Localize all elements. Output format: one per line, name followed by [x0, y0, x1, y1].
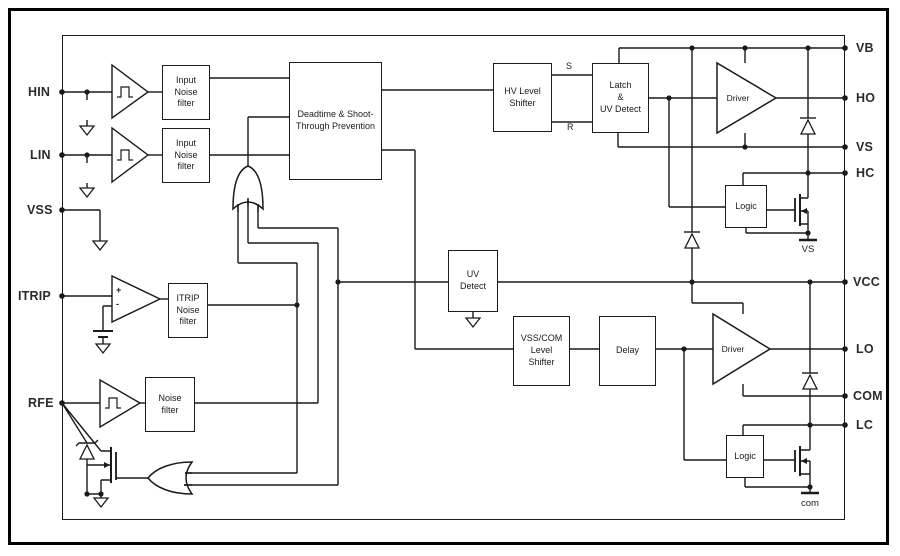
- mosfet-body-arrow-icon: [801, 208, 807, 214]
- rfe-net: [62, 380, 148, 507]
- ground-icon: [94, 498, 108, 507]
- vcc-net: [338, 282, 845, 327]
- block-latch-uv-detect: Latch & UV Detect: [592, 63, 649, 133]
- schmitt-buffer-icon: [112, 128, 148, 182]
- block-logic-high-side: Logic: [725, 185, 767, 228]
- comparator-minus-sign: -: [116, 299, 119, 309]
- mosfet-body-arrow-icon: [104, 462, 110, 468]
- pin-label-vss: VSS: [27, 203, 53, 217]
- lc-clamp-branch: [743, 282, 845, 450]
- pin-label-hin: HIN: [28, 85, 50, 99]
- pin-label-lin: LIN: [30, 148, 51, 162]
- pin-label-vs: VS: [856, 140, 873, 154]
- label-driver-low: Driver: [713, 344, 753, 354]
- ground-icon: [96, 344, 110, 353]
- pin-label-lo: LO: [856, 342, 874, 356]
- ground-icon: [80, 126, 94, 135]
- block-deadtime-shoot-through: Deadtime & Shoot- Through Prevention: [289, 62, 382, 180]
- block-rfe-noise-filter: Noise filter: [145, 377, 195, 432]
- block-itrip-noise-filter: ITRIP Noise filter: [168, 283, 208, 338]
- pin-label-itrip: ITRIP: [18, 289, 51, 303]
- diode-icon: [801, 120, 815, 134]
- ground-icon: [80, 188, 94, 197]
- pin-label-vb: VB: [856, 41, 874, 55]
- label-set: S: [566, 61, 572, 71]
- block-input-noise-filter-hin: Input Noise filter: [162, 65, 210, 120]
- sr-lines: [552, 75, 592, 122]
- pin-label-vcc: VCC: [853, 275, 880, 289]
- block-vss-com-level-shifter: VSS/COM Level Shifter: [513, 316, 570, 386]
- label-driver-high: Driver: [717, 93, 759, 103]
- block-hv-level-shifter: HV Level Shifter: [493, 63, 552, 132]
- vb-rail: [619, 48, 845, 63]
- diode-icon: [803, 375, 817, 389]
- lin-schmitt-buffer: [112, 128, 148, 182]
- block-delay: Delay: [599, 316, 656, 386]
- ground-icon: [93, 241, 107, 250]
- or-gate-icon: [148, 462, 192, 494]
- pin-label-com: COM: [853, 389, 883, 403]
- bootstrap-diode-branch: [684, 48, 700, 282]
- block-logic-low-side: Logic: [726, 435, 764, 478]
- hc-clamp-branch: [669, 48, 845, 207]
- mosfet-body-arrow-icon: [801, 458, 807, 464]
- comparator-plus-sign: +: [116, 285, 121, 295]
- hin-schmitt-buffer: [112, 65, 148, 118]
- comparator-icon: [112, 276, 160, 322]
- pin-label-lc: LC: [856, 418, 873, 432]
- schmitt-buffer-icon: [112, 65, 148, 118]
- label-reset: R: [567, 122, 574, 132]
- diode-icon: [685, 234, 699, 248]
- label-ground-vs: VS: [795, 244, 821, 255]
- label-ground-com: com: [792, 498, 828, 509]
- pin-label-rfe: RFE: [28, 396, 54, 410]
- ground-icon: [466, 318, 480, 327]
- schmitt-buffer-icon: [100, 380, 140, 427]
- pin-label-hc: HC: [856, 166, 874, 180]
- vss-net: [62, 210, 107, 250]
- pin-label-ho: HO: [856, 91, 875, 105]
- block-uv-detect: UV Detect: [448, 250, 498, 312]
- block-input-noise-filter-lin: Input Noise filter: [162, 128, 210, 183]
- block-diagram: Input Noise filter Input Noise filter De…: [0, 0, 900, 556]
